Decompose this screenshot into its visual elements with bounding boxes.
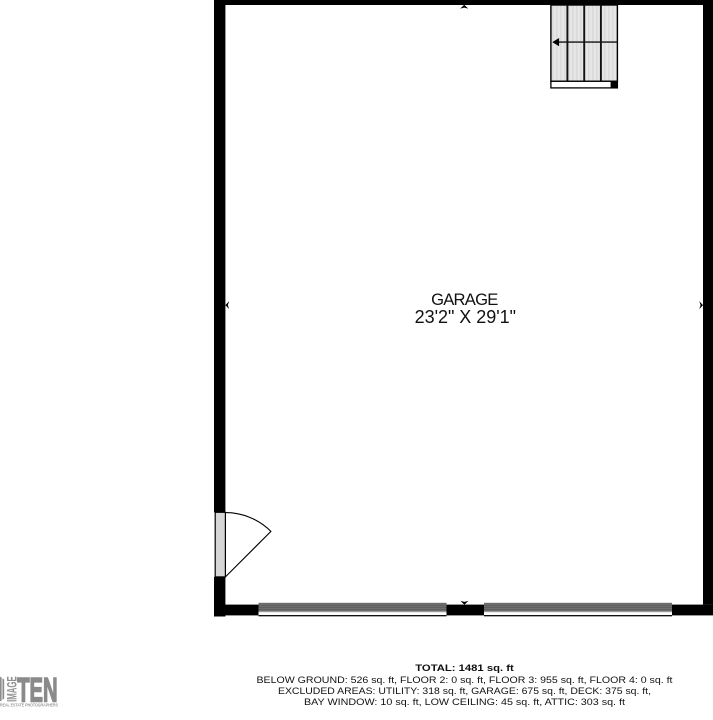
svg-text:TOTAL: 1481 sq. ft: TOTAL: 1481 sq. ft	[415, 663, 514, 674]
svg-text:EXCLUDED AREAS: UTILITY: 318 s: EXCLUDED AREAS: UTILITY: 318 sq. ft, GAR…	[278, 686, 651, 697]
svg-text:23'2" X 29'1": 23'2" X 29'1"	[415, 307, 516, 327]
svg-text:BELOW GROUND: 526 sq. ft, FLOO: BELOW GROUND: 526 sq. ft, FLOOR 2: 0 sq.…	[257, 675, 673, 686]
svg-text:REAL ESTATE PHOTOGRAPHERS: REAL ESTATE PHOTOGRAPHERS	[0, 702, 59, 708]
svg-text:BAY WINDOW: 10 sq. ft, LOW CEI: BAY WINDOW: 10 sq. ft, LOW CEILING: 45 s…	[304, 697, 625, 708]
